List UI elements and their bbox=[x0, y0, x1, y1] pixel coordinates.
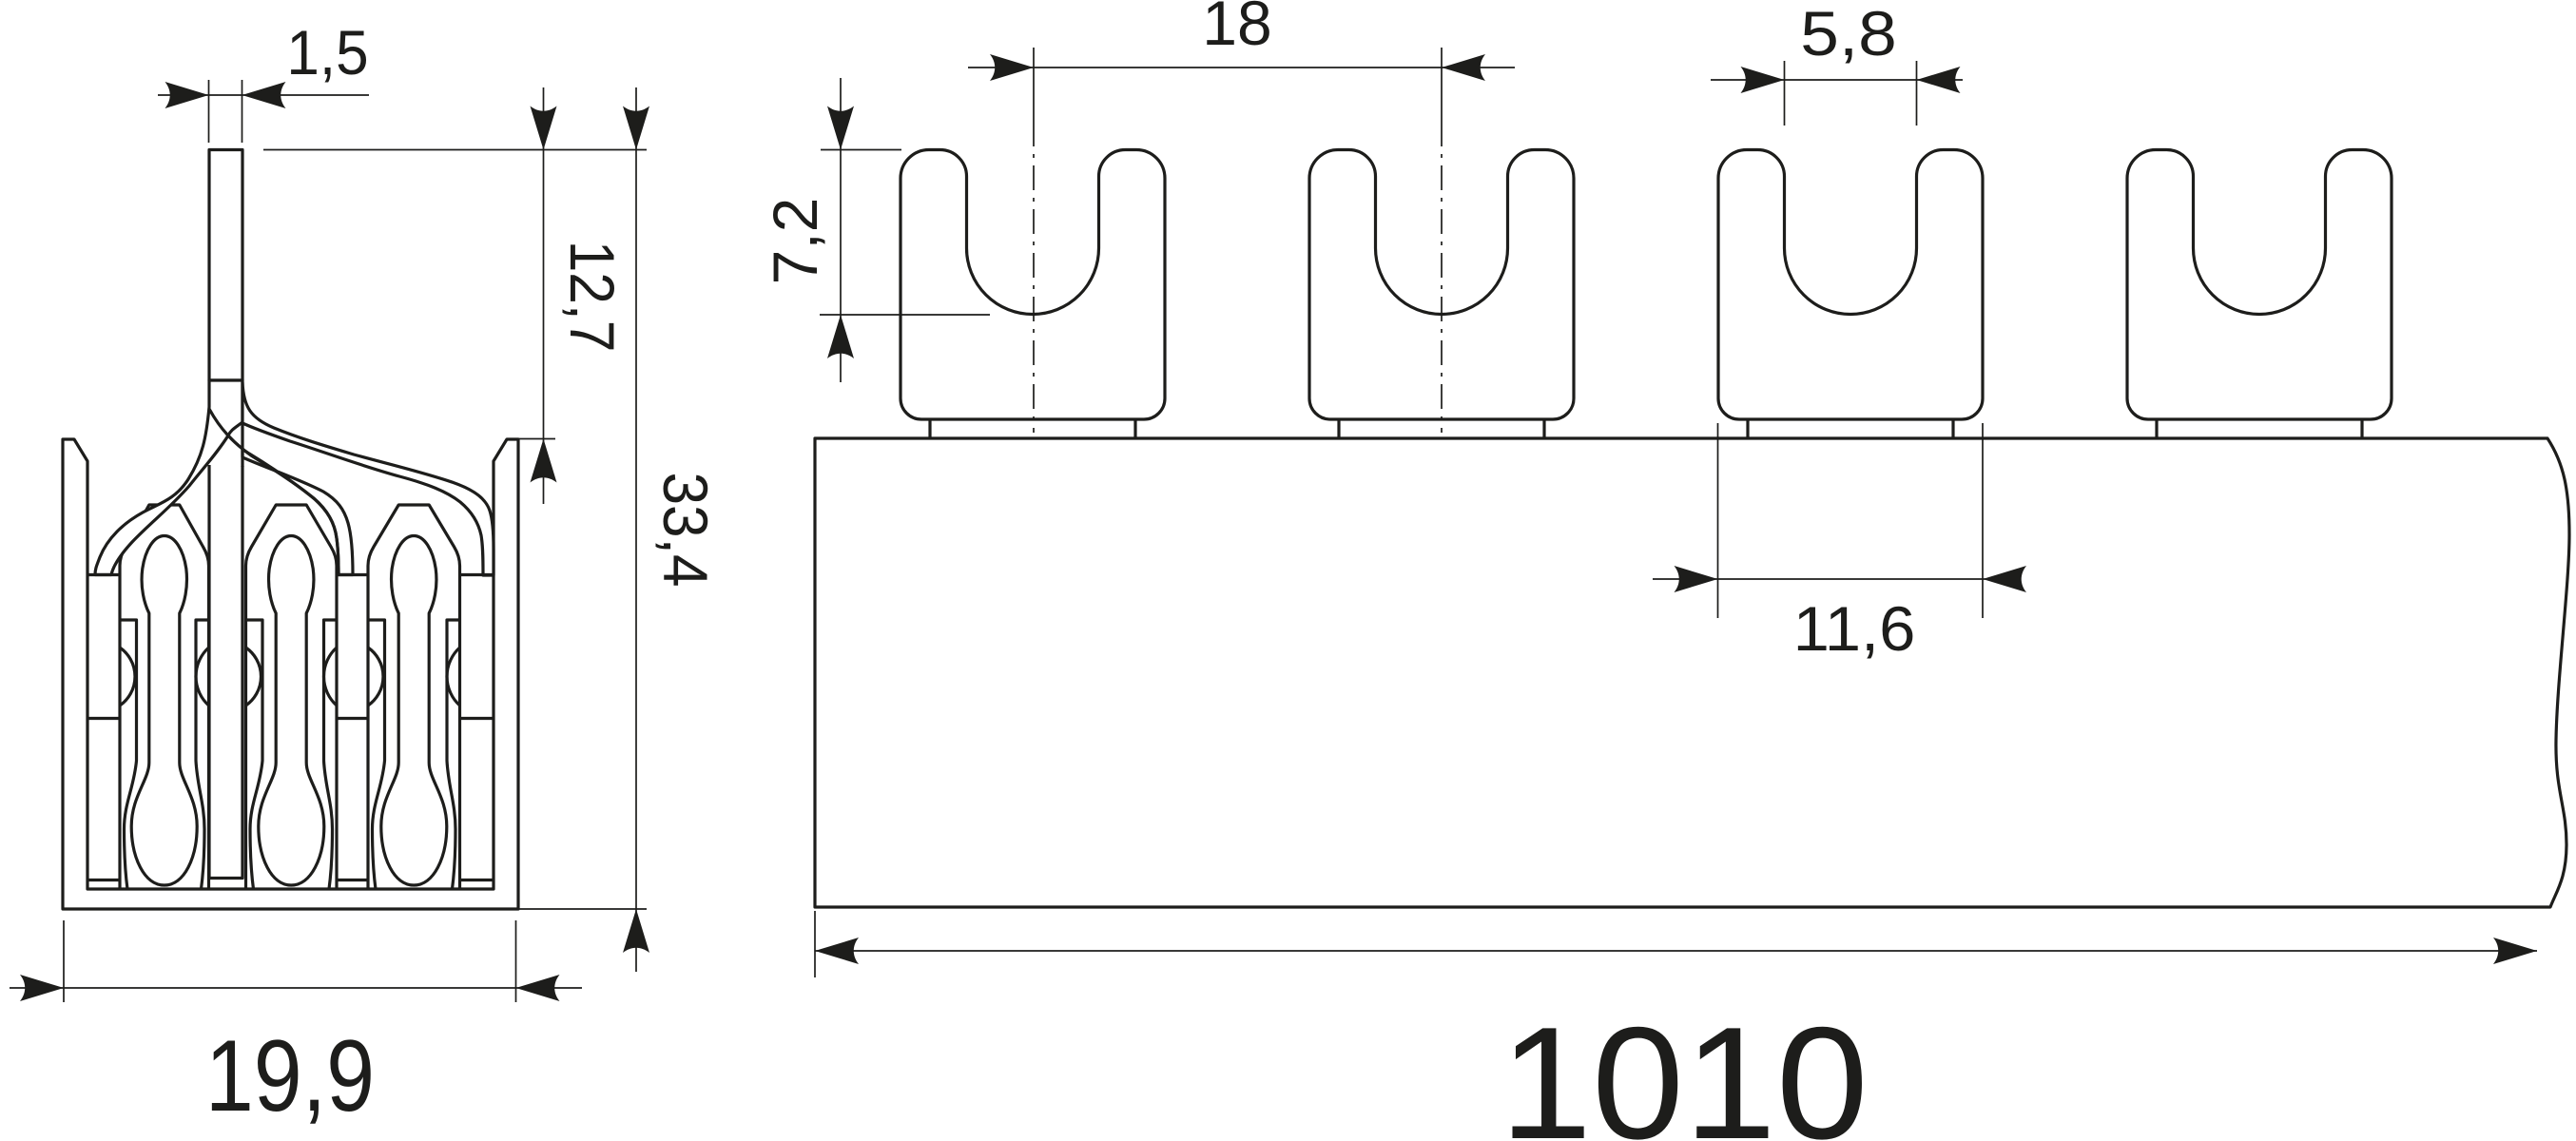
svg-text:7,2: 7,2 bbox=[760, 198, 830, 285]
svg-text:11,6: 11,6 bbox=[1793, 594, 1916, 664]
svg-text:33,4: 33,4 bbox=[650, 472, 721, 587]
svg-text:1,5: 1,5 bbox=[286, 17, 368, 87]
svg-text:1010: 1010 bbox=[1500, 995, 1869, 1141]
svg-text:12,7: 12,7 bbox=[556, 241, 626, 353]
svg-text:18: 18 bbox=[1202, 0, 1271, 58]
svg-text:5,8: 5,8 bbox=[1800, 0, 1897, 68]
svg-text:19,9: 19,9 bbox=[205, 1019, 375, 1132]
